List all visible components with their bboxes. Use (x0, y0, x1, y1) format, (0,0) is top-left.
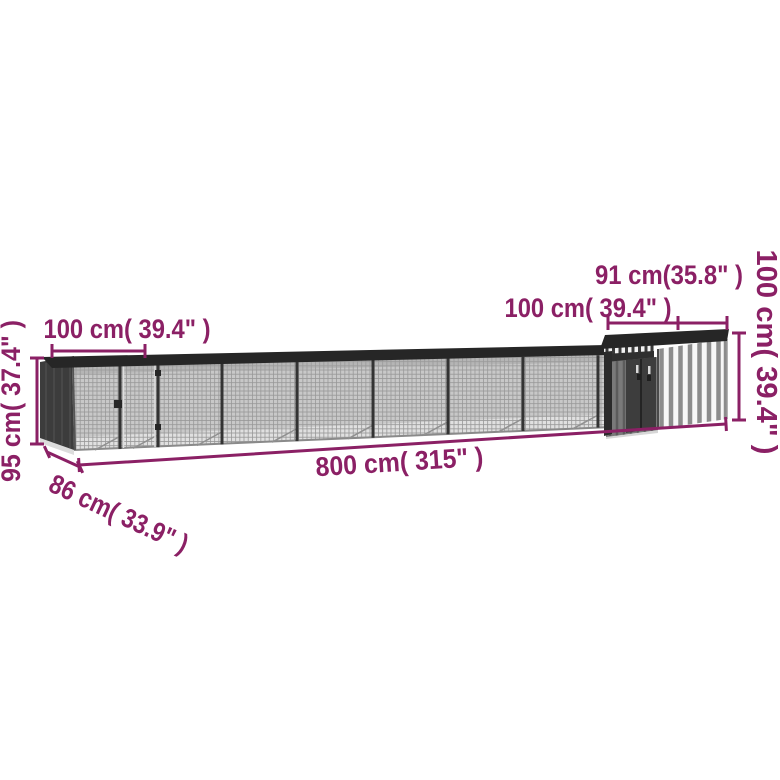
left-end-wall (40, 356, 74, 450)
door-hinge-bottom (155, 424, 161, 430)
shed-door (626, 357, 656, 433)
door-latch (114, 400, 122, 408)
label-shed-height: 100 cm( 39.4" ) (750, 250, 780, 455)
product-dimension-diagram: 100 cm( 39.4" ) 95 cm( 37.4" ) 86 cm( 33… (0, 0, 780, 780)
shed-corner-post (604, 351, 612, 436)
label-shed-depth: 100 cm( 39.4" ) (505, 293, 672, 323)
label-run-height: 95 cm( 37.4" ) (0, 320, 26, 482)
door-hardware-right (648, 366, 651, 374)
door-hinge-top (155, 370, 161, 376)
door-hardware-left (636, 365, 639, 373)
label-shed-width: 91 cm(35.8" ) (595, 260, 743, 290)
diagram-svg: 100 cm( 39.4" ) 95 cm( 37.4" ) 86 cm( 33… (0, 0, 780, 780)
door-handle-left (637, 374, 641, 380)
label-section-width: 100 cm( 39.4" ) (44, 314, 211, 344)
door-handle-right (647, 375, 651, 381)
